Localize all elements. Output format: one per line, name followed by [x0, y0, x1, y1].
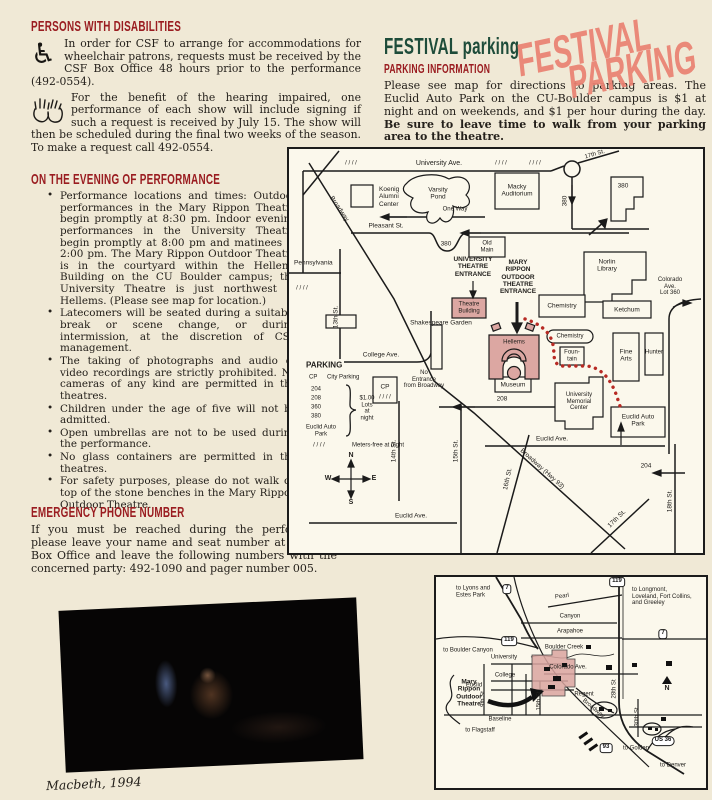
section-heading: PERSONS WITH DISABILITIES	[31, 17, 361, 35]
map-street-label: 380	[561, 196, 568, 207]
macbeth-performance-photo	[58, 597, 363, 772]
map-no-entrance-label: No Entrance from Broadway	[404, 370, 444, 390]
map-street-label: 15th St	[537, 691, 544, 710]
map-building-label: Macky Auditorium	[501, 184, 532, 199]
compass-west-label: W	[325, 475, 332, 483]
map-building-label: University Memorial Center	[566, 392, 592, 412]
compass-north-label: N	[664, 685, 669, 693]
map-building-label: Norlin Library	[597, 259, 617, 274]
map-street-label: Euclid Ave.	[395, 512, 427, 519]
map-street-label: Canyon	[560, 614, 581, 621]
map-street-label: 380	[441, 240, 452, 247]
legend-euclid-label: Euclid Auto Park	[306, 424, 336, 437]
parking-info-heading: PARKING INFORMATION	[384, 61, 710, 77]
map-street-label: 9th St	[481, 691, 488, 707]
buildings	[326, 173, 665, 437]
parking-paragraph: Please see map for directions to parking…	[384, 80, 706, 144]
map-street-label: University Ave.	[416, 160, 462, 168]
map-lot-label: Colorado Ave. Lot 360	[654, 277, 687, 297]
map-hatch-marks: / / / /	[529, 161, 541, 168]
highway-shield-119: 119	[501, 636, 517, 646]
legend-meters-label: Meters-free at night	[352, 443, 404, 450]
map-street-label: 28th St	[612, 679, 619, 698]
map-street-label: University	[491, 655, 517, 662]
map-street-label: Euclid Ave.	[536, 435, 568, 442]
map-garden-label: Shakespeare Garden	[410, 319, 472, 326]
map-street-label: 18th St.	[666, 490, 673, 512]
map-building-label: Hellems	[503, 340, 525, 347]
map-street-label: Arapahoe	[557, 629, 583, 636]
map-building-label: Chemistry	[547, 302, 576, 309]
map-lot-label: 204	[641, 462, 652, 469]
legend-cp-abbr: CP	[309, 375, 317, 382]
map-building-label: Theatre Building	[458, 301, 479, 314]
section-heading: ON THE EVENING OF PERFORMANCE	[31, 170, 297, 188]
highway-shield-7: 7	[502, 584, 511, 594]
title-text: FESTIVAL parking	[384, 33, 519, 60]
map-direction-label: to Golden	[623, 746, 649, 753]
paragraph-text: Please see map for directions to parking…	[384, 79, 706, 118]
map-pond-label: Varsity Pond	[428, 187, 447, 202]
map-building-label: Foun- tain	[564, 349, 580, 362]
regional-map: to Lyons and Estes Park to Longmont, Lov…	[434, 575, 708, 790]
compass-east-label: E	[372, 475, 377, 483]
map-lot-label: CP	[380, 383, 389, 390]
festival-parking-title: FESTIVAL parking	[384, 33, 710, 60]
map-one-way-label: One Way	[443, 207, 468, 214]
campus-parking-map: University Ave. / / / / / / / / / / / / …	[287, 147, 705, 555]
list-item: The taking of photographs and audio or v…	[45, 356, 297, 403]
map-university-theatre-entrance-label: UNIVERSITY THEATRE ENTRANCE	[453, 256, 492, 278]
legend-cp-label: City Parking	[327, 375, 359, 382]
highway-shield-93: 93	[600, 743, 613, 753]
section-evening: ON THE EVENING OF PERFORMANCE Performanc…	[31, 170, 297, 512]
map-direction-label: to Lyons and Estes Park	[456, 585, 490, 598]
list-item: No glass containers are permitted in the…	[45, 452, 297, 475]
paragraph-text: For the benefit of the hearing impaired,…	[31, 91, 361, 155]
disabilities-paragraph-1: ♿ In order for CSF to arrange for accomm…	[31, 38, 361, 89]
evening-rules-list: Performance locations and times: Outdoor…	[45, 191, 297, 511]
map-hatch-marks: / / / /	[379, 395, 391, 402]
photo-caption: Macbeth, 1994	[46, 774, 142, 793]
signing-hands-icon	[31, 95, 63, 129]
wheelchair-icon: ♿	[31, 40, 56, 68]
map-hatch-marks: / / / /	[495, 161, 507, 168]
map-creek-label: Boulder Creek	[545, 645, 583, 652]
map-mary-rippon-entrance-label: MARY RIPPON OUTDOOR THEATRE ENTRANCE	[500, 259, 536, 295]
map-building-label: Fine Arts	[620, 349, 633, 364]
highway-shield-us36: US 36	[652, 736, 675, 746]
legend-price-label: $1.00 Lots at night	[359, 396, 374, 423]
paragraph-bold-text: Be sure to leave time to walk from your …	[384, 118, 706, 144]
map-street-label: Baseline	[488, 717, 511, 724]
map-street-label: College	[495, 673, 515, 680]
map-building-label: 380	[618, 182, 629, 189]
map-street-label: Pennsylvania	[294, 259, 333, 266]
brochure-page: PERSONS WITH DISABILITIES ♿ In order for…	[0, 0, 712, 800]
highway-shield-7: 7	[658, 629, 667, 639]
heading-text: PERSONS WITH DISABILITIES	[31, 18, 181, 35]
list-item: Children under the age of five will not …	[45, 404, 297, 427]
legend-meter-hatch: / / / /	[313, 443, 325, 450]
compass-north-label: N	[348, 452, 353, 460]
map-building-label: Koenig Alumni Center	[379, 186, 399, 208]
heading-text: PARKING INFORMATION	[384, 61, 490, 76]
map-direction-label: to Longmont, Loveland, Fort Collins, and…	[632, 587, 692, 607]
map-building-label: Museum	[501, 381, 526, 388]
map-building-label: Hunter	[645, 350, 663, 357]
legend-lot-number: 360	[311, 405, 321, 412]
legend-lot-number: 204	[311, 387, 321, 394]
map-direction-label: to Flagstaff	[465, 728, 495, 735]
map-mary-rippon-label: Mary Rippon Outdoor Theatre	[456, 678, 482, 707]
list-item: Latecomers will be seated during a suita…	[45, 308, 297, 355]
list-item: Open umbrellas are not to be used during…	[45, 428, 297, 451]
section-disabilities: PERSONS WITH DISABILITIES ♿ In order for…	[31, 17, 361, 155]
map-hatch-marks: / / / /	[345, 161, 357, 168]
heading-text: ON THE EVENING OF PERFORMANCE	[31, 171, 220, 188]
map-direction-label: to Denver	[660, 763, 686, 770]
heading-text: EMERGENCY PHONE NUMBER	[31, 504, 185, 521]
legend-title: PARKING	[306, 362, 342, 371]
campus-map-graphic	[289, 149, 703, 553]
compass-south-label: S	[349, 499, 354, 507]
map-direction-label: to Boulder Canyon	[443, 648, 493, 655]
list-item: Performance locations and times: Outdoor…	[45, 191, 297, 307]
disabilities-paragraph-2: For the benefit of the hearing impaired,…	[31, 92, 361, 155]
legend-lot-number: 208	[311, 396, 321, 403]
map-street-label: Pleasant St.	[368, 222, 403, 229]
map-building-label: Ketchum	[614, 306, 640, 313]
map-street-label: 30th St	[635, 707, 642, 726]
map-building-label: Euclid Auto Park	[622, 414, 655, 429]
map-street-label: 13th St.	[332, 306, 339, 328]
map-hatch-marks: / / / /	[296, 286, 308, 293]
map-street-label: 208	[497, 395, 508, 402]
legend-lot-number: 380	[311, 414, 321, 421]
highway-shield-119: 119	[609, 577, 625, 587]
map-street-label: Colorado Ave.	[549, 665, 587, 672]
map-street-label: 15th St.	[452, 440, 459, 462]
map-street-label: College Ave.	[363, 351, 399, 358]
map-building-label: Old Main	[480, 240, 493, 253]
paragraph-text: In order for CSF to arrange for accommod…	[31, 37, 361, 88]
section-parking-info: FESTIVAL parking PARKING INFORMATION Ple…	[384, 33, 710, 144]
map-building-label: Chemistry	[556, 334, 583, 341]
